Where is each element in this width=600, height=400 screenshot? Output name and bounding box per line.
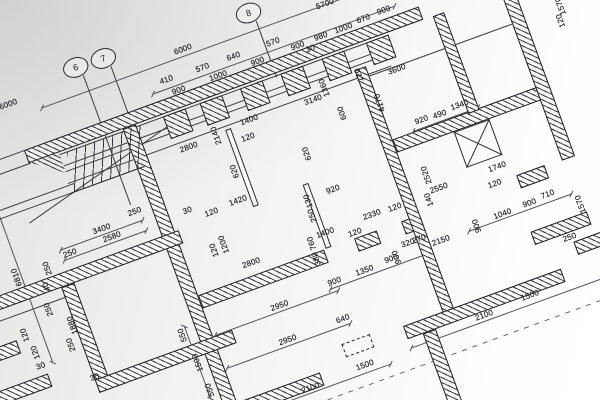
shaft-x-line [466,119,490,168]
plan-line [0,163,31,206]
dimension-label: 1500 [191,352,205,372]
dimension-label: 120 [555,13,567,29]
dimension-label: 120 [387,202,403,214]
dimension-label: 2800 [241,256,261,270]
wall-bottom-stem [423,329,468,400]
dimension-label: 2550 [429,182,449,196]
dimension-label: 250 [65,337,77,353]
dimension-label: 120 [30,344,42,360]
dimension-label: 920 [325,184,341,196]
grid-bubble-6: 6 [60,54,91,82]
dimension-label: 410 [159,74,175,86]
dimension-label: 1570 [574,194,588,214]
floor-plan: 6000570060004109005701000640900570900309… [0,0,600,400]
dimension-label: 5700 [315,0,335,11]
plan-line [0,183,74,237]
dimension-line [330,253,430,290]
grid-bubble-8: 8 [233,0,264,27]
dimension-label: 900 [471,218,483,234]
dimension-label: 120 [204,207,220,219]
dimension-label: 30 [182,205,193,216]
dimension-label: 2150 [431,234,451,248]
dimension-label: 30 [35,361,46,372]
dimension-label: 1740 [487,160,507,174]
grid-bubble-7: 7 [88,45,119,73]
plan-line [0,149,26,192]
dimension-label: 550 [177,327,189,343]
wall-stub-left [0,373,53,400]
wall-stub-left [0,340,21,370]
dimension-label: 250 [43,301,55,317]
dimension-label: 120 [240,132,256,144]
grid-bubble-label: 7 [99,53,107,64]
dimension-label: 120 [487,178,503,190]
grid-bubble-label: 8 [244,7,252,18]
dimension-label: 900 [376,4,392,16]
dimension-label: 2330 [362,208,382,222]
dimension-label: 250 [127,206,143,218]
dimension-label: 250 [42,260,54,276]
dimension-label: 550 [204,382,216,398]
wall-pier [516,165,549,188]
dimension-label: 2520 [420,165,434,185]
lintel-symbol [341,334,374,357]
dimension-label: 120 [19,327,31,343]
blueprint-photo: Architectural floor plan blueprint photo… [0,0,600,400]
dimension-label: 620 [301,146,313,162]
dimension-label: 6000 [0,98,19,112]
dimension-label: 1420 [228,194,248,208]
wall-bottom-right [403,269,566,340]
dimension-label: 1400 [239,113,259,127]
dimension-label: 600 [336,105,348,121]
dimension-line [227,323,351,369]
grid-bubble-label: 6 [72,62,80,73]
room-wall-left [61,283,108,382]
wall-vertical-right [433,12,480,114]
